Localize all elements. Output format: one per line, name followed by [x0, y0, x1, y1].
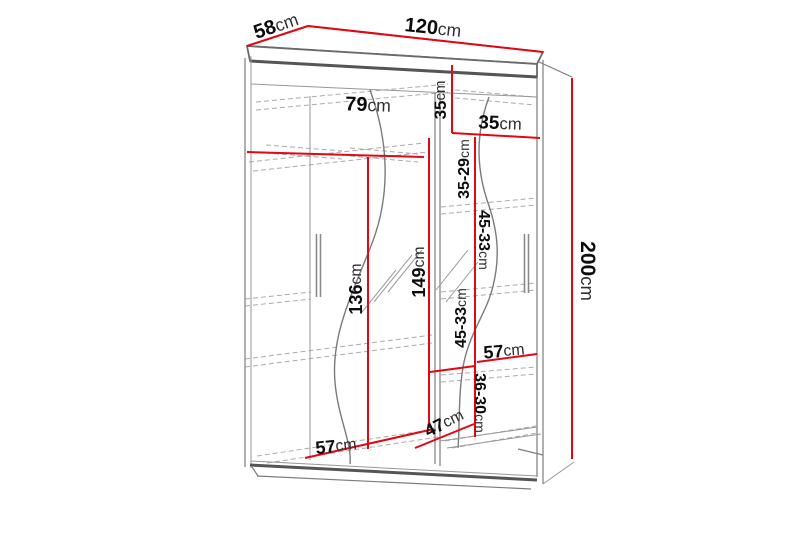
plinth [250, 427, 574, 489]
dim-right-shelf-width-label: 57cm [483, 339, 526, 363]
dim-mid-hanging-label: 149cm [409, 246, 429, 297]
dim-height-label: 200cm [577, 241, 600, 301]
dim-shelf-range-2-label: 45-33cm [476, 210, 493, 270]
dim-top-left-width-line [247, 152, 424, 157]
hidden-edges [245, 84, 537, 463]
dim-shelf-range-4-label: 36-30cm [472, 373, 489, 433]
right-door-handle [525, 234, 529, 293]
left-door-handle [317, 234, 321, 297]
dim-top-left-width-label: 79cm [345, 93, 391, 117]
dim-top-shelf-height-label: 35cm [431, 81, 450, 120]
dim-shelf-range-1-label: 35-29cm [456, 139, 473, 199]
dim-top-right-width-label: 35cm [478, 112, 522, 135]
dim-shelf-connector-line [430, 366, 475, 372]
crown-right-connector [539, 62, 572, 77]
wardrobe-dimension-diagram: 58cm 120cm 200cm 79cm 35cm 35cm 35-29cm … [0, 0, 800, 533]
dimension-labels: 58cm 120cm 200cm 79cm 35cm 35cm 35-29cm … [251, 8, 600, 458]
door-top-edge [251, 84, 537, 97]
floor-shadow [543, 462, 574, 484]
dim-left-hanging-label: 136cm [346, 263, 366, 314]
diagram-svg: 58cm 120cm 200cm 79cm 35cm 35cm 35-29cm … [0, 0, 800, 533]
dim-top-right-width-line [452, 133, 540, 138]
dim-shelf-range-3-label: 45-33cm [453, 288, 470, 348]
dim-bottom-left-width-label: 57cm [314, 434, 357, 458]
